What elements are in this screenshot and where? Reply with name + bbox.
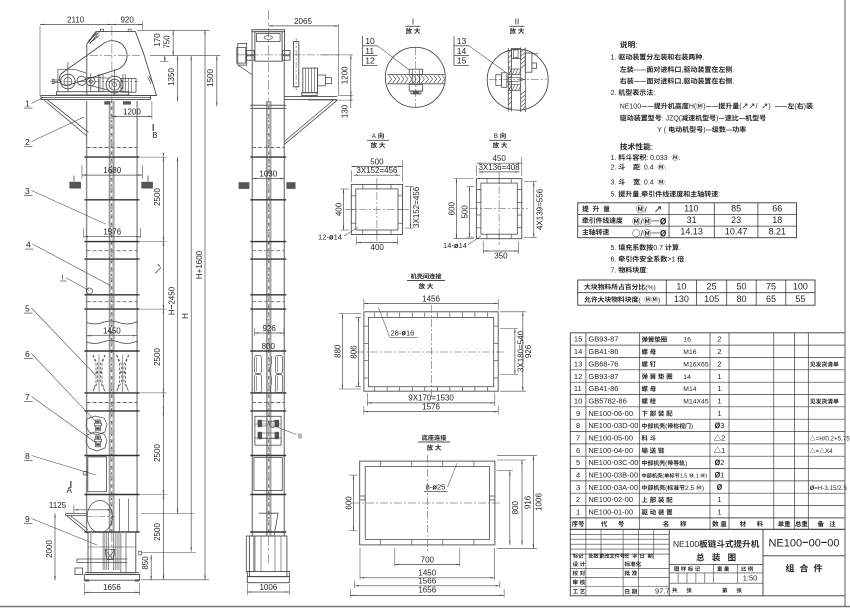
- svg-text:6: 6: [25, 349, 30, 359]
- svg-text:00: 00: [827, 538, 839, 550]
- svg-text:1: 1: [717, 495, 721, 504]
- svg-text:25: 25: [437, 483, 445, 492]
- svg-text:4: 4: [26, 240, 31, 250]
- svg-text:2: 2: [717, 335, 721, 344]
- svg-text:110: 110: [684, 203, 698, 213]
- svg-text:1: 1: [576, 508, 580, 517]
- svg-text:1680: 1680: [103, 166, 121, 175]
- svg-text:10.47: 10.47: [725, 227, 748, 237]
- svg-text:7: 7: [25, 392, 30, 402]
- svg-text:,: ,: [681, 79, 683, 86]
- svg-text:4: 4: [576, 470, 580, 479]
- svg-text:1: 1: [717, 409, 721, 418]
- svg-text:3X152=456: 3X152=456: [412, 186, 421, 228]
- svg-text:920: 920: [120, 16, 134, 25]
- svg-text:1.5: 1.5: [680, 473, 688, 479]
- svg-text:M14: M14: [683, 386, 696, 393]
- svg-text:1: 1: [717, 396, 721, 405]
- svg-text:55: 55: [795, 294, 805, 304]
- svg-text:5: 5: [576, 458, 580, 467]
- svg-text:1456: 1456: [422, 295, 440, 304]
- svg-text:700: 700: [421, 556, 435, 565]
- svg-text:.: .: [665, 180, 667, 187]
- svg-text:8: 8: [576, 421, 580, 430]
- svg-text:3X136=408: 3X136=408: [478, 163, 520, 172]
- svg-text:14: 14: [574, 347, 582, 356]
- svg-text::: :: [653, 90, 655, 97]
- svg-text:1500: 1500: [206, 69, 215, 87]
- svg-text:400: 400: [371, 243, 385, 252]
- svg-text:4X139=556: 4X139=556: [535, 188, 544, 230]
- svg-text:3: 3: [576, 483, 580, 492]
- svg-text:800: 800: [511, 501, 520, 515]
- svg-text:2: 2: [576, 495, 580, 504]
- svg-text:8-: 8-: [426, 483, 433, 492]
- svg-text:): ): [804, 104, 806, 111]
- svg-text:100: 100: [793, 281, 808, 291]
- svg-text:2110: 2110: [67, 16, 85, 25]
- svg-text:GB68-76: GB68-76: [588, 359, 618, 368]
- svg-text:GB41-86: GB41-86: [588, 347, 618, 356]
- svg-text:): ): [716, 116, 718, 123]
- svg-text:NE100: NE100: [673, 539, 699, 549]
- svg-text:1: 1: [25, 99, 30, 109]
- svg-text:3.: 3.: [611, 180, 617, 187]
- svg-text:.: .: [665, 165, 667, 172]
- svg-text::: :: [651, 143, 653, 152]
- svg-text:450: 450: [492, 154, 506, 163]
- svg-text:M14X45: M14X45: [683, 398, 709, 405]
- svg-text:3: 3: [720, 421, 724, 430]
- svg-text:2: 2: [721, 433, 725, 442]
- svg-text:600: 600: [345, 496, 354, 510]
- svg-text:NE100-03C-00: NE100-03C-00: [588, 458, 638, 467]
- svg-text:1: 1: [721, 446, 725, 455]
- svg-text:2500: 2500: [153, 188, 162, 206]
- svg-text:.: .: [684, 257, 686, 264]
- svg-text:11: 11: [365, 46, 374, 56]
- svg-text:105: 105: [704, 294, 719, 304]
- svg-text:2500: 2500: [153, 444, 162, 462]
- svg-text:GB93-87: GB93-87: [588, 372, 618, 381]
- svg-text:: JZQ(: : JZQ(: [662, 116, 682, 123]
- svg-text:X4: X4: [825, 448, 833, 455]
- svg-text:14.13: 14.13: [680, 227, 703, 237]
- svg-text:800: 800: [262, 342, 276, 351]
- svg-text:B: B: [494, 133, 498, 140]
- svg-text:9: 9: [25, 514, 30, 524]
- svg-text:(%): (%): [645, 284, 656, 291]
- svg-text:80: 80: [736, 294, 746, 304]
- svg-text:I: I: [412, 17, 414, 26]
- svg-text:500: 500: [461, 205, 470, 219]
- svg-text:H+1600: H+1600: [195, 250, 204, 279]
- svg-text:): ): [703, 127, 705, 134]
- svg-text:16: 16: [406, 328, 414, 337]
- svg-text:): ): [768, 104, 770, 111]
- svg-text:13: 13: [574, 359, 582, 368]
- svg-text:850: 850: [141, 556, 150, 570]
- svg-text:NE100: NE100: [768, 538, 802, 550]
- svg-text:12: 12: [365, 56, 375, 66]
- svg-text:M16: M16: [683, 349, 696, 356]
- svg-text:,: ,: [639, 192, 641, 199]
- svg-text:NE100-05-00: NE100-05-00: [588, 433, 633, 442]
- svg-text:A: A: [372, 133, 377, 140]
- svg-text:13: 13: [457, 36, 467, 46]
- svg-text:NE100-02-00: NE100-02-00: [588, 495, 633, 504]
- svg-text:=: =: [816, 448, 820, 455]
- svg-text:GB41-86: GB41-86: [588, 384, 618, 393]
- svg-text:,1: ,1: [694, 473, 699, 479]
- svg-text::: :: [646, 268, 648, 275]
- svg-text:00: 00: [809, 538, 821, 550]
- svg-text:NE100: NE100: [620, 104, 642, 111]
- svg-text:.: .: [679, 155, 681, 162]
- svg-text:3: 3: [25, 186, 30, 196]
- svg-text:1: 1: [717, 508, 721, 517]
- svg-text:97.7: 97.7: [655, 586, 670, 595]
- svg-text:1200: 1200: [123, 108, 141, 117]
- svg-text:=H-3.15/2.5: =H-3.15/2.5: [814, 485, 847, 492]
- svg-text:NE100-04-00: NE100-04-00: [588, 446, 633, 455]
- svg-text:2: 2: [717, 347, 721, 356]
- svg-text:130: 130: [340, 104, 349, 118]
- svg-text:5.: 5.: [611, 245, 617, 252]
- svg-text:H: H: [167, 309, 176, 315]
- svg-text:GB93-87: GB93-87: [588, 335, 618, 344]
- svg-text:6.: 6.: [611, 257, 617, 264]
- svg-text:II: II: [515, 17, 519, 26]
- svg-text:): ): [703, 104, 705, 111]
- svg-text:926: 926: [262, 324, 276, 333]
- svg-text:Y (: Y (: [657, 127, 666, 134]
- svg-text:2500: 2500: [153, 348, 162, 366]
- svg-text:50: 50: [736, 281, 746, 291]
- svg-text:10: 10: [574, 396, 582, 405]
- svg-text:I: I: [62, 275, 64, 282]
- svg-text:): ): [705, 473, 707, 479]
- svg-text:500: 500: [370, 158, 384, 167]
- svg-text:31: 31: [687, 215, 697, 225]
- svg-text:1: 1: [717, 384, 721, 393]
- svg-text:2: 2: [720, 458, 724, 467]
- svg-text:2.: 2.: [611, 165, 617, 172]
- svg-text:2500: 2500: [153, 523, 162, 541]
- svg-text:: 0.033: : 0.033: [646, 155, 668, 162]
- svg-text:750: 750: [163, 35, 172, 49]
- svg-text:6: 6: [576, 446, 580, 455]
- svg-text:10: 10: [365, 36, 375, 46]
- svg-text:130: 130: [674, 294, 689, 304]
- svg-text::: :: [718, 192, 720, 199]
- svg-text:1.: 1.: [611, 55, 617, 62]
- svg-text:1656: 1656: [418, 585, 436, 594]
- svg-text:1: 1: [717, 372, 721, 381]
- svg-text:5.: 5.: [611, 192, 617, 199]
- svg-text:>1: >1: [667, 257, 675, 264]
- svg-text:14: 14: [459, 241, 467, 250]
- svg-text:5: 5: [25, 304, 30, 314]
- svg-text:1200: 1200: [340, 66, 349, 84]
- svg-text:400: 400: [335, 202, 344, 216]
- svg-text:14: 14: [334, 233, 342, 242]
- svg-text:1576: 1576: [422, 402, 440, 411]
- svg-text:M16X65: M16X65: [683, 361, 709, 368]
- svg-text:,: ,: [681, 67, 683, 74]
- svg-text:II: II: [298, 434, 302, 441]
- svg-text:B: B: [152, 131, 157, 140]
- svg-text:7: 7: [576, 433, 580, 442]
- svg-text:926: 926: [524, 344, 533, 358]
- svg-text:65: 65: [766, 294, 776, 304]
- svg-text:1006: 1006: [535, 493, 544, 511]
- svg-text:2000: 2000: [45, 540, 54, 558]
- svg-text:.: .: [679, 245, 681, 252]
- svg-text:14: 14: [457, 46, 467, 56]
- svg-text:28-: 28-: [391, 328, 402, 337]
- svg-text:): ): [691, 423, 693, 430]
- svg-text:23: 23: [731, 215, 741, 225]
- svg-text:.: .: [732, 67, 734, 74]
- svg-text:2065: 2065: [294, 17, 312, 26]
- svg-text:170: 170: [153, 33, 162, 47]
- svg-text:NE100-03B-00: NE100-03B-00: [588, 470, 638, 479]
- svg-text:66: 66: [772, 203, 782, 213]
- svg-text:): ): [658, 297, 660, 304]
- svg-text:: 0.4: : 0.4: [640, 180, 654, 187]
- svg-text:85: 85: [731, 203, 741, 213]
- svg-text:GB5782-86: GB5782-86: [588, 396, 626, 405]
- svg-text:14-: 14-: [443, 241, 454, 250]
- svg-text:880: 880: [334, 344, 343, 358]
- svg-text:916: 916: [523, 495, 532, 509]
- svg-text:1030: 1030: [259, 170, 277, 179]
- svg-text:1: 1: [720, 470, 724, 479]
- svg-text:NE100-06-00: NE100-06-00: [588, 409, 633, 418]
- svg-text:.: .: [702, 55, 704, 62]
- svg-text:1576: 1576: [103, 228, 121, 237]
- svg-text:350: 350: [494, 252, 508, 261]
- svg-text:H(: H(: [689, 104, 697, 111]
- svg-text:9: 9: [576, 409, 580, 418]
- svg-text:H: H: [181, 313, 190, 319]
- svg-text:): ): [685, 460, 687, 467]
- svg-text:1450: 1450: [103, 327, 121, 336]
- svg-text:NE100-03D-00: NE100-03D-00: [588, 421, 638, 430]
- svg-text:A: A: [67, 486, 73, 495]
- svg-text:1.: 1.: [611, 155, 617, 162]
- svg-text:11: 11: [574, 384, 582, 393]
- svg-text:8.21: 8.21: [768, 227, 786, 237]
- svg-text:16: 16: [683, 337, 691, 344]
- svg-text:/: /: [756, 104, 758, 111]
- svg-text:): ): [702, 485, 704, 492]
- svg-text:: 0.4: : 0.4: [640, 165, 654, 172]
- svg-text:NE100-01-00: NE100-01-00: [588, 508, 633, 517]
- svg-text:3X152=456: 3X152=456: [356, 166, 398, 175]
- svg-text:25: 25: [707, 281, 717, 291]
- svg-text:75: 75: [766, 281, 776, 291]
- svg-text:12-: 12-: [318, 233, 329, 242]
- svg-text::: :: [635, 41, 637, 50]
- svg-text:15: 15: [574, 335, 582, 344]
- svg-text:1656: 1656: [103, 583, 121, 592]
- svg-text:14: 14: [683, 374, 691, 381]
- svg-text:7.: 7.: [611, 268, 617, 275]
- svg-text:18: 18: [772, 215, 782, 225]
- svg-text:1350: 1350: [167, 68, 176, 86]
- svg-text:2: 2: [25, 137, 30, 147]
- svg-text:2.5: 2.5: [685, 485, 694, 492]
- svg-text:2450: 2450: [167, 286, 176, 304]
- svg-text:2.: 2.: [611, 90, 617, 97]
- svg-text:NE100-03A-00: NE100-03A-00: [588, 483, 638, 492]
- svg-text:12: 12: [574, 372, 582, 381]
- svg-text:0.7: 0.7: [653, 245, 663, 252]
- svg-text:1125: 1125: [49, 501, 67, 510]
- svg-text:.: .: [732, 79, 734, 86]
- svg-text:10: 10: [676, 281, 686, 291]
- svg-text:2: 2: [717, 359, 721, 368]
- svg-text:15: 15: [457, 56, 467, 66]
- svg-text:1006: 1006: [259, 583, 277, 592]
- svg-text:1566: 1566: [418, 577, 436, 586]
- svg-text:806: 806: [350, 345, 359, 359]
- svg-text:.: .: [813, 104, 815, 111]
- svg-text:(: (: [662, 473, 664, 479]
- svg-text:9X170=1530: 9X170=1530: [408, 394, 454, 403]
- svg-text:600: 600: [448, 201, 457, 215]
- svg-text:1:50: 1:50: [743, 574, 758, 583]
- svg-text:8: 8: [25, 451, 30, 461]
